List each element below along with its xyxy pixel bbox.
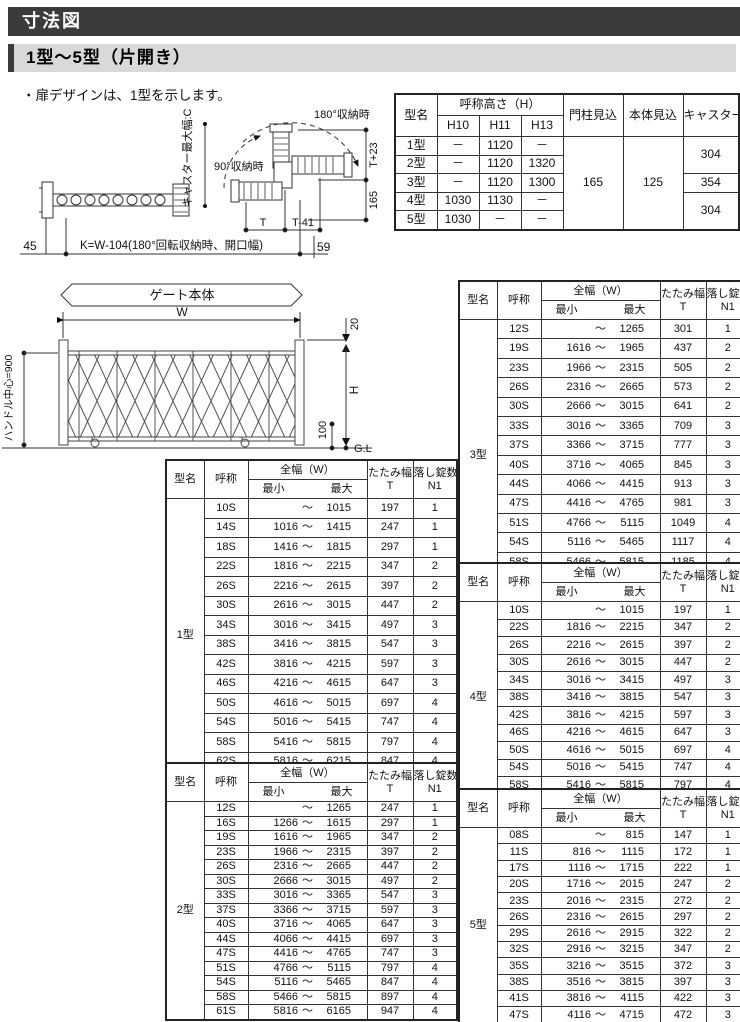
size-row: 26S2216～26153972 <box>459 637 740 655</box>
spec-header-body-depth: 本体見込 <box>623 94 683 137</box>
size-header-locks: 落し錠数N1 <box>413 460 457 499</box>
size-locks-cell: 2 <box>706 358 740 377</box>
size-row: 16S1266～16152971 <box>166 816 457 831</box>
size-header-minmax: 最小最大 <box>541 301 660 320</box>
size-header-fold: たたみ幅T <box>660 789 706 828</box>
size-locks-cell: 3 <box>413 889 457 904</box>
size-header-name: 呼称 <box>497 281 541 320</box>
size-locks-cell: 3 <box>706 455 740 474</box>
spec-caster-value: 354 <box>683 174 739 193</box>
size-row: 51S4766～511510494 <box>459 513 740 532</box>
size-locks-cell: 4 <box>413 976 457 991</box>
size-fold-cell: 947 <box>367 1005 413 1020</box>
size-width-cell: 2316～2665 <box>541 378 660 397</box>
size-locks-cell: 3 <box>706 974 740 990</box>
size-fold-cell: 913 <box>660 475 706 494</box>
size-width-cell: 3366～3715 <box>541 436 660 455</box>
t-plus23-label: T+23 <box>368 142 380 167</box>
size-fold-cell: 747 <box>660 759 706 777</box>
size-row: 17S1116～17152221 <box>459 860 740 876</box>
size-width-cell: 4616～5015 <box>248 694 367 714</box>
size-name-cell: 44S <box>204 932 248 947</box>
size-fold-cell: 222 <box>660 860 706 876</box>
spec-header-h11: H11 <box>479 116 521 137</box>
size-width-cell: 5416～5815 <box>248 733 367 753</box>
size-name-cell: 38S <box>497 974 541 990</box>
size-width-cell: 4066～4415 <box>541 475 660 494</box>
size-fold-cell: 297 <box>367 538 413 558</box>
size-table-4型: 型名呼称全幅（W）たたみ幅T落し錠数N1最小最大4型10S～1015197122… <box>458 562 740 796</box>
size-width-cell: 1716～2015 <box>541 876 660 892</box>
size-header-name: 呼称 <box>497 789 541 828</box>
size-row: 18S1416～18152971 <box>166 538 457 558</box>
size-locks-cell: 2 <box>413 557 457 577</box>
size-fold-cell: 397 <box>660 637 706 655</box>
size-header-locks: 落し錠数N1 <box>706 563 740 602</box>
size-model-cell: 3型 <box>459 320 497 592</box>
size-fold-cell: 647 <box>367 918 413 933</box>
size-width-cell: 3516～3815 <box>541 974 660 990</box>
size-row: 42S3816～42155973 <box>166 655 457 675</box>
size-locks-cell: 1 <box>706 860 740 876</box>
size-width-cell: 4066～4415 <box>248 932 367 947</box>
storage-dimension-diagram: キャスター最大幅:C 180°収納時 90°収納時 T+23 <box>18 96 392 270</box>
size-locks-cell: 3 <box>413 655 457 675</box>
size-model-cell: 5型 <box>459 828 497 1022</box>
gate-body-diagram: ゲート本体 W <box>2 278 372 458</box>
size-name-cell: 29S <box>497 925 541 941</box>
size-fold-cell: 297 <box>367 816 413 831</box>
spec-post-depth-value: 165 <box>563 137 623 230</box>
k-formula-label: K=W-104(180°回転収納時、開口幅) <box>80 239 263 252</box>
v20-label: 20 <box>349 318 361 330</box>
size-header-model: 型名 <box>459 563 497 602</box>
size-width-cell: ～1015 <box>248 499 367 519</box>
size-width-cell: 5016～5415 <box>541 759 660 777</box>
size-row: 46S4216～46156473 <box>459 724 740 742</box>
size-name-cell: 50S <box>204 694 248 714</box>
size-name-cell: 40S <box>497 455 541 474</box>
size-row: 20S1716～20152472 <box>459 876 740 892</box>
size-locks-cell: 1 <box>413 816 457 831</box>
size-fold-cell: 597 <box>367 903 413 918</box>
size-name-cell: 30S <box>204 596 248 616</box>
size-row: 40S3716～40656473 <box>166 918 457 933</box>
size-locks-cell: 4 <box>413 1005 457 1020</box>
size-row: 3型12S～12653011 <box>459 320 740 339</box>
size-header-minmax: 最小最大 <box>541 583 660 602</box>
size-name-cell: 54S <box>497 533 541 552</box>
size-row: 41S3816～41154223 <box>459 990 740 1006</box>
size-fold-cell: 641 <box>660 397 706 416</box>
spec-model-cell: 5型 <box>395 211 437 230</box>
size-fold-cell: 1117 <box>660 533 706 552</box>
spec-h10-cell: 1030 <box>437 192 479 211</box>
size-name-cell: 34S <box>204 616 248 636</box>
gate-elevation-drawing <box>59 340 304 447</box>
size-row: 33S3016～33657093 <box>459 416 740 435</box>
size-table-2型: 型名呼称全幅（W）たたみ幅T落し錠数N1最小最大2型12S～1265247116… <box>165 762 458 1021</box>
size-locks-cell: 2 <box>413 831 457 846</box>
size-width-cell: 4766～5115 <box>541 513 660 532</box>
size-width-cell: 2616～3015 <box>541 654 660 672</box>
spec-row: 1型－1120－165125304 <box>395 137 739 156</box>
size-row: 37S3366～37157773 <box>459 436 740 455</box>
size-width-cell: 3366～3715 <box>248 903 367 918</box>
size-name-cell: 19S <box>204 831 248 846</box>
size-header-width: 全幅（W） <box>248 763 367 783</box>
size-row: 38S3416～38155473 <box>166 635 457 655</box>
size-width-cell: 3016～3365 <box>541 416 660 435</box>
size-name-cell: 12S <box>497 320 541 339</box>
size-locks-cell: 2 <box>706 619 740 637</box>
size-fold-cell: 697 <box>660 742 706 760</box>
spec-h13-cell: － <box>521 211 563 230</box>
size-row: 38S3416～38155473 <box>459 689 740 707</box>
size-width-cell: 5466～5815 <box>248 990 367 1005</box>
size-locks-cell: 4 <box>413 733 457 753</box>
v59-label: 59 <box>317 240 331 254</box>
size-fold-cell: 747 <box>367 947 413 962</box>
size-name-cell: 10S <box>497 602 541 620</box>
size-width-cell: 2316～2665 <box>248 860 367 875</box>
size-row: 22S1816～22153472 <box>166 557 457 577</box>
size-fold-cell: 472 <box>660 1007 706 1022</box>
size-locks-cell: 2 <box>413 845 457 860</box>
size-fold-cell: 372 <box>660 958 706 974</box>
size-locks-cell: 1 <box>413 499 457 519</box>
w-label: W <box>176 305 188 319</box>
size-width-cell: 1616～1965 <box>541 339 660 358</box>
size-width-cell: 3816～4215 <box>541 707 660 725</box>
size-row: 54S5116～54658474 <box>166 976 457 991</box>
size-fold-cell: 397 <box>367 845 413 860</box>
size-row: 2型12S～12652471 <box>166 802 457 817</box>
size-row: 61S5816～61659474 <box>166 1005 457 1020</box>
size-fold-cell: 597 <box>367 655 413 675</box>
size-locks-cell: 3 <box>706 689 740 707</box>
size-header-model: 型名 <box>459 789 497 828</box>
size-fold-cell: 347 <box>660 619 706 637</box>
size-width-cell: 3016～3415 <box>248 616 367 636</box>
size-row: 30S2616～30154472 <box>459 654 740 672</box>
v165-label: 165 <box>368 191 380 209</box>
size-width-cell: 1116～1715 <box>541 860 660 876</box>
size-fold-cell: 347 <box>367 557 413 577</box>
size-width-cell: 2666～3015 <box>248 874 367 889</box>
size-row: 23S1966～23153972 <box>166 845 457 860</box>
size-name-cell: 47S <box>204 947 248 962</box>
size-locks-cell: 4 <box>413 694 457 714</box>
size-width-cell: ～815 <box>541 828 660 844</box>
size-row: 19S1616～19654372 <box>459 339 740 358</box>
size-width-cell: ～1265 <box>541 320 660 339</box>
size-name-cell: 23S <box>497 893 541 909</box>
size-locks-cell: 1 <box>706 828 740 844</box>
size-row: 37S3366～37155973 <box>166 903 457 918</box>
right-dimensions <box>298 128 368 222</box>
size-row: 14S1016～14152471 <box>166 518 457 538</box>
size-locks-cell: 4 <box>413 990 457 1005</box>
spec-header-post-depth: 門柱見込 <box>563 94 623 137</box>
size-row: 34S3016～34154973 <box>166 616 457 636</box>
size-fold-cell: 197 <box>660 602 706 620</box>
size-name-cell: 54S <box>204 976 248 991</box>
size-width-cell: 4116～4715 <box>541 1007 660 1022</box>
spec-h11-cell: 1120 <box>479 155 521 174</box>
size-locks-cell: 2 <box>706 876 740 892</box>
size-width-cell: 1616～1965 <box>248 831 367 846</box>
size-name-cell: 26S <box>497 378 541 397</box>
deg180-label: 180°収納時 <box>314 108 370 121</box>
spec-h13-cell: － <box>521 192 563 211</box>
size-header-fold: たたみ幅T <box>660 563 706 602</box>
size-row: 35S3216～35153723 <box>459 958 740 974</box>
size-locks-cell: 3 <box>706 958 740 974</box>
size-locks-cell: 1 <box>706 320 740 339</box>
spec-header-model: 型名 <box>395 94 437 137</box>
size-row: 58S5466～58158974 <box>166 990 457 1005</box>
size-name-cell: 47S <box>497 494 541 513</box>
size-fold-cell: 547 <box>660 689 706 707</box>
size-name-cell: 11S <box>497 844 541 860</box>
caster-width-dimension: キャスター最大幅:C <box>180 108 207 208</box>
size-locks-cell: 2 <box>706 893 740 909</box>
spec-model-cell: 4型 <box>395 192 437 211</box>
size-locks-cell: 2 <box>706 397 740 416</box>
size-fold-cell: 497 <box>367 616 413 636</box>
handle-dimension <box>22 351 58 447</box>
size-fold-cell: 505 <box>660 358 706 377</box>
size-model-cell: 1型 <box>166 499 204 773</box>
size-fold-cell: 597 <box>660 707 706 725</box>
spec-h13-cell: － <box>521 137 563 156</box>
spec-h13-cell: 1300 <box>521 174 563 193</box>
size-row: 26S2216～26153972 <box>166 577 457 597</box>
size-header-model: 型名 <box>459 281 497 320</box>
spec-h10-cell: 1030 <box>437 211 479 230</box>
size-name-cell: 32S <box>497 942 541 958</box>
spec-caster-value: 304 <box>683 192 739 230</box>
size-name-cell: 26S <box>204 860 248 875</box>
spec-header-height-group: 呼称高さ（H） <box>437 94 563 116</box>
size-header-minmax: 最小最大 <box>248 480 367 499</box>
size-name-cell: 23S <box>497 358 541 377</box>
size-fold-cell: 897 <box>367 990 413 1005</box>
section-title: 1型～5型（片開き） <box>8 44 736 72</box>
size-row: 26S2316～26654472 <box>166 860 457 875</box>
size-name-cell: 14S <box>204 518 248 538</box>
size-name-cell: 42S <box>497 707 541 725</box>
size-name-cell: 26S <box>497 909 541 925</box>
size-width-cell: 3716～4065 <box>248 918 367 933</box>
size-model-cell: 2型 <box>166 802 204 1020</box>
size-fold-cell: 447 <box>660 654 706 672</box>
size-locks-cell: 3 <box>706 494 740 513</box>
size-row: 50S4616～50156974 <box>459 742 740 760</box>
size-row: 33S3016～33655473 <box>166 889 457 904</box>
size-locks-cell: 2 <box>413 596 457 616</box>
size-name-cell: 41S <box>497 990 541 1006</box>
size-name-cell: 58S <box>204 733 248 753</box>
size-width-cell: 5116～5465 <box>541 533 660 552</box>
size-fold-cell: 247 <box>660 876 706 892</box>
size-name-cell: 42S <box>204 655 248 675</box>
size-fold-cell: 747 <box>367 713 413 733</box>
spec-body-depth-value: 125 <box>623 137 683 230</box>
spec-h10-cell: － <box>437 137 479 156</box>
size-width-cell: 5016～5415 <box>248 713 367 733</box>
collapsed-gate-drawing <box>39 182 189 218</box>
size-locks-cell: 4 <box>413 961 457 976</box>
spec-h13-cell: 1320 <box>521 155 563 174</box>
size-fold-cell: 647 <box>367 674 413 694</box>
size-width-cell: 4616～5015 <box>541 742 660 760</box>
size-fold-cell: 847 <box>367 976 413 991</box>
size-row: 11S816～11151721 <box>459 844 740 860</box>
size-name-cell: 37S <box>204 903 248 918</box>
v100-label: 100 <box>317 421 329 439</box>
size-name-cell: 40S <box>204 918 248 933</box>
size-row: 47S4116～47154723 <box>459 1007 740 1022</box>
size-fold-cell: 573 <box>660 378 706 397</box>
size-row: 44S4066～44159133 <box>459 475 740 494</box>
size-width-cell: 2916～3215 <box>541 942 660 958</box>
size-name-cell: 35S <box>497 958 541 974</box>
size-name-cell: 34S <box>497 672 541 690</box>
v45-label: 45 <box>23 239 37 253</box>
size-locks-cell: 3 <box>706 436 740 455</box>
spec-header-caster: キャスター最大幅（C） <box>683 94 739 137</box>
size-row: 47S4416～47659813 <box>459 494 740 513</box>
size-locks-cell: 3 <box>706 707 740 725</box>
size-width-cell: 2616～3015 <box>248 596 367 616</box>
size-locks-cell: 3 <box>413 616 457 636</box>
size-width-cell: 4216～4615 <box>541 724 660 742</box>
size-header-model: 型名 <box>166 763 204 802</box>
t-label: T <box>260 217 267 229</box>
size-header-name: 呼称 <box>497 563 541 602</box>
size-fold-cell: 497 <box>367 874 413 889</box>
size-name-cell: 44S <box>497 475 541 494</box>
size-name-cell: 61S <box>204 1005 248 1020</box>
size-header-minmax: 最小最大 <box>541 809 660 828</box>
size-row: 54S5016～54157474 <box>459 759 740 777</box>
size-name-cell: 16S <box>204 816 248 831</box>
size-locks-cell: 2 <box>706 378 740 397</box>
size-row: 34S3016～34154973 <box>459 672 740 690</box>
size-row: 42S3816～42155973 <box>459 707 740 725</box>
size-width-cell: 5116～5465 <box>248 976 367 991</box>
size-name-cell: 26S <box>497 637 541 655</box>
size-row: 1型10S～10151971 <box>166 499 457 519</box>
t-minus41-label: T-41 <box>292 217 314 229</box>
spec-h11-cell: － <box>479 211 521 230</box>
size-fold-cell: 797 <box>367 733 413 753</box>
spec-h10-cell: － <box>437 174 479 193</box>
gate-body-banner: ゲート本体 <box>61 284 302 306</box>
size-width-cell: 816～1115 <box>541 844 660 860</box>
size-width-cell: 3416～3815 <box>541 689 660 707</box>
size-locks-cell: 1 <box>413 518 457 538</box>
size-header-locks: 落し錠数N1 <box>413 763 457 802</box>
size-width-cell: 2616～2915 <box>541 925 660 941</box>
size-name-cell: 26S <box>204 577 248 597</box>
size-locks-cell: 2 <box>706 909 740 925</box>
size-width-cell: 1266～1615 <box>248 816 367 831</box>
size-name-cell: 23S <box>204 845 248 860</box>
h-label: H <box>347 386 361 395</box>
gl-label: G.L <box>354 443 372 455</box>
size-width-cell: 3416～3815 <box>248 635 367 655</box>
size-name-cell: 38S <box>497 689 541 707</box>
size-header-model: 型名 <box>166 460 204 499</box>
size-header-locks: 落し錠数N1 <box>706 789 740 828</box>
size-width-cell: 2216～2615 <box>248 577 367 597</box>
size-name-cell: 30S <box>497 397 541 416</box>
size-fold-cell: 197 <box>367 499 413 519</box>
size-row: 23S2016～23152722 <box>459 893 740 909</box>
spec-h10-cell: － <box>437 155 479 174</box>
size-width-cell: 3016～3365 <box>248 889 367 904</box>
size-name-cell: 54S <box>204 713 248 733</box>
size-name-cell: 47S <box>497 1007 541 1022</box>
size-locks-cell: 4 <box>706 759 740 777</box>
size-fold-cell: 647 <box>660 724 706 742</box>
size-locks-cell: 1 <box>413 538 457 558</box>
size-locks-cell: 3 <box>413 635 457 655</box>
size-locks-cell: 2 <box>706 654 740 672</box>
size-locks-cell: 3 <box>706 416 740 435</box>
size-locks-cell: 1 <box>706 844 740 860</box>
size-width-cell: ～1015 <box>541 602 660 620</box>
size-fold-cell: 322 <box>660 925 706 941</box>
size-row: 29S2616～29153222 <box>459 925 740 941</box>
size-fold-cell: 547 <box>367 635 413 655</box>
size-name-cell: 46S <box>204 674 248 694</box>
size-locks-cell: 4 <box>706 742 740 760</box>
size-table-3型: 型名呼称全幅（W）たたみ幅T落し錠数N1最小最大3型12S～1265301119… <box>458 280 740 592</box>
size-width-cell: 3716～4065 <box>541 455 660 474</box>
size-name-cell: 51S <box>204 961 248 976</box>
size-row: 58S5416～58157974 <box>166 733 457 753</box>
size-locks-cell: 4 <box>413 713 457 733</box>
size-width-cell: 1816～2215 <box>541 619 660 637</box>
size-fold-cell: 497 <box>660 672 706 690</box>
size-width-cell: 5816～6165 <box>248 1005 367 1020</box>
size-locks-cell: 2 <box>413 860 457 875</box>
size-table-5型: 型名呼称全幅（W）たたみ幅T落し錠数N1最小最大5型08S～815147111S… <box>458 788 740 1022</box>
page-title: 寸法図 <box>8 7 740 36</box>
size-fold-cell: 447 <box>367 596 413 616</box>
size-name-cell: 50S <box>497 742 541 760</box>
size-width-cell: 1016～1415 <box>248 518 367 538</box>
size-fold-cell: 1049 <box>660 513 706 532</box>
size-width-cell: 1966～2315 <box>248 845 367 860</box>
size-name-cell: 10S <box>204 499 248 519</box>
size-width-cell: 2016～2315 <box>541 893 660 909</box>
size-row: 51S4766～51157974 <box>166 961 457 976</box>
gate-body-banner-label: ゲート本体 <box>149 288 214 303</box>
size-header-fold: たたみ幅T <box>660 281 706 320</box>
size-row: 50S4616～50156974 <box>166 694 457 714</box>
size-width-cell: 1416～1815 <box>248 538 367 558</box>
size-width-cell: 3816～4215 <box>248 655 367 675</box>
size-row: 26S2316～26152972 <box>459 909 740 925</box>
spec-table-body: 1型－1120－1651253042型－112013203型－112013003… <box>395 137 739 230</box>
size-fold-cell: 447 <box>367 860 413 875</box>
size-fold-cell: 397 <box>367 577 413 597</box>
